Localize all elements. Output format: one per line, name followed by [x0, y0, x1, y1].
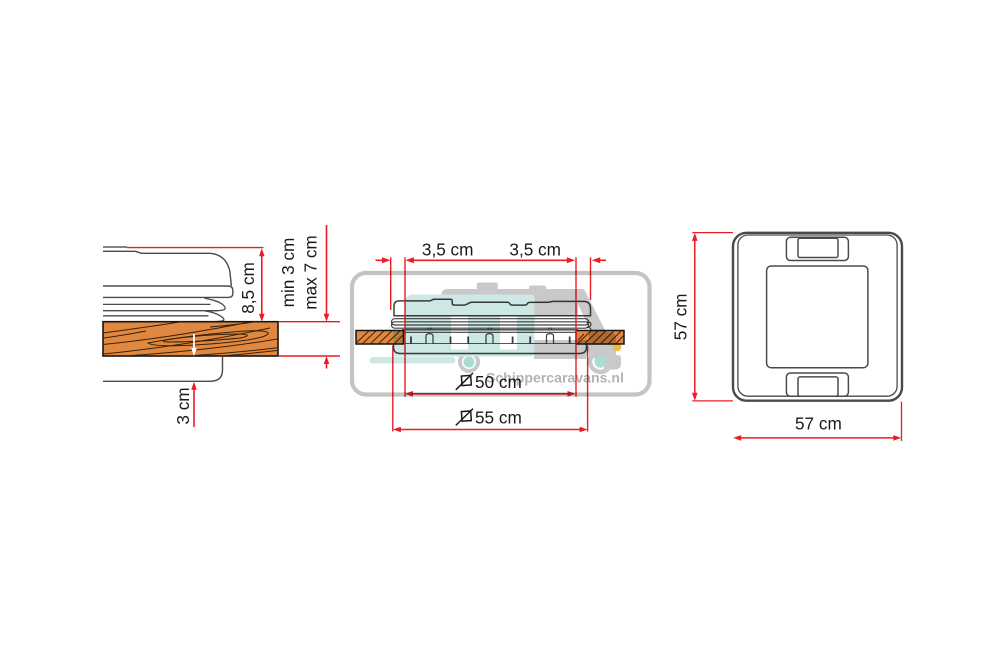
svg-text:max 7 cm: max 7 cm [301, 235, 321, 310]
svg-text:3,5 cm: 3,5 cm [422, 239, 474, 259]
svg-text:55 cm: 55 cm [475, 407, 522, 427]
svg-text:57 cm: 57 cm [671, 293, 691, 340]
svg-text:min 3 cm: min 3 cm [278, 238, 298, 308]
svg-text:3,5 cm: 3,5 cm [509, 239, 561, 259]
svg-text:Schippercaravans.nl: Schippercaravans.nl [486, 370, 624, 386]
svg-text:3 cm: 3 cm [173, 387, 193, 424]
svg-text:57 cm: 57 cm [795, 413, 842, 433]
svg-text:8,5 cm: 8,5 cm [238, 262, 258, 314]
